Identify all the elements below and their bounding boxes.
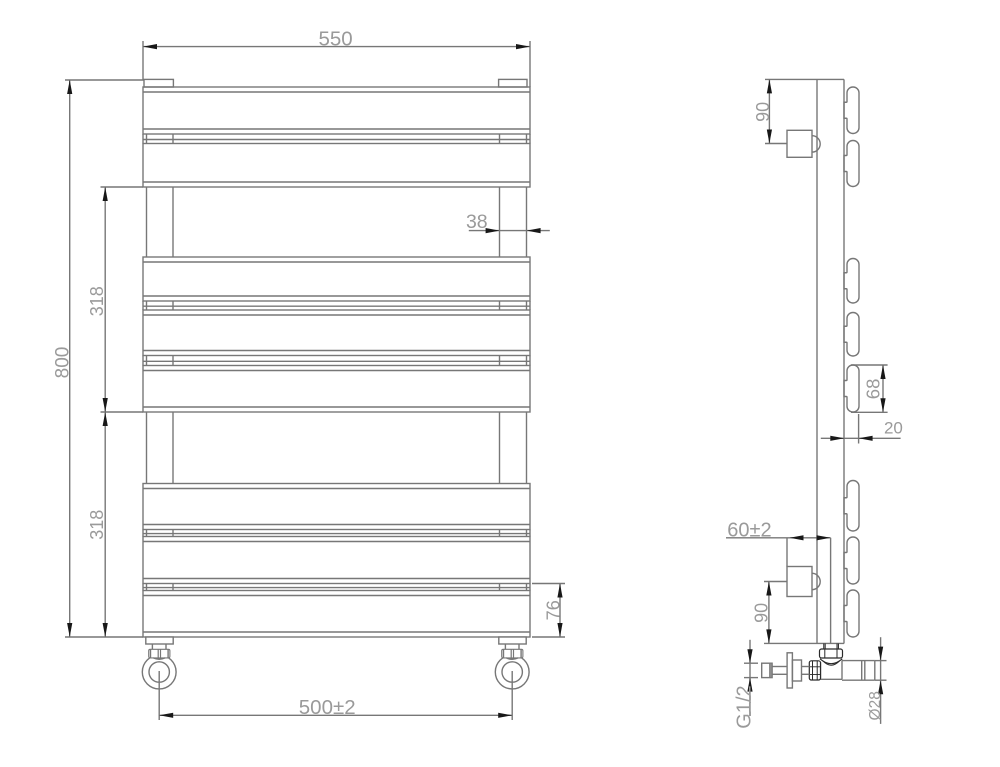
svg-text:60±2: 60±2 [727,520,771,542]
svg-text:90: 90 [753,102,773,122]
svg-text:800: 800 [53,347,74,379]
svg-text:G1/2: G1/2 [734,685,756,728]
svg-text:318: 318 [87,510,107,540]
svg-text:500±2: 500±2 [299,696,356,719]
svg-text:38: 38 [466,211,488,233]
svg-text:318: 318 [87,286,107,316]
svg-text:90: 90 [752,603,772,623]
svg-text:550: 550 [318,27,352,50]
svg-text:Ø28: Ø28 [867,691,884,720]
svg-text:68: 68 [862,379,883,400]
svg-text:76: 76 [543,600,563,620]
svg-text:20: 20 [884,418,903,437]
